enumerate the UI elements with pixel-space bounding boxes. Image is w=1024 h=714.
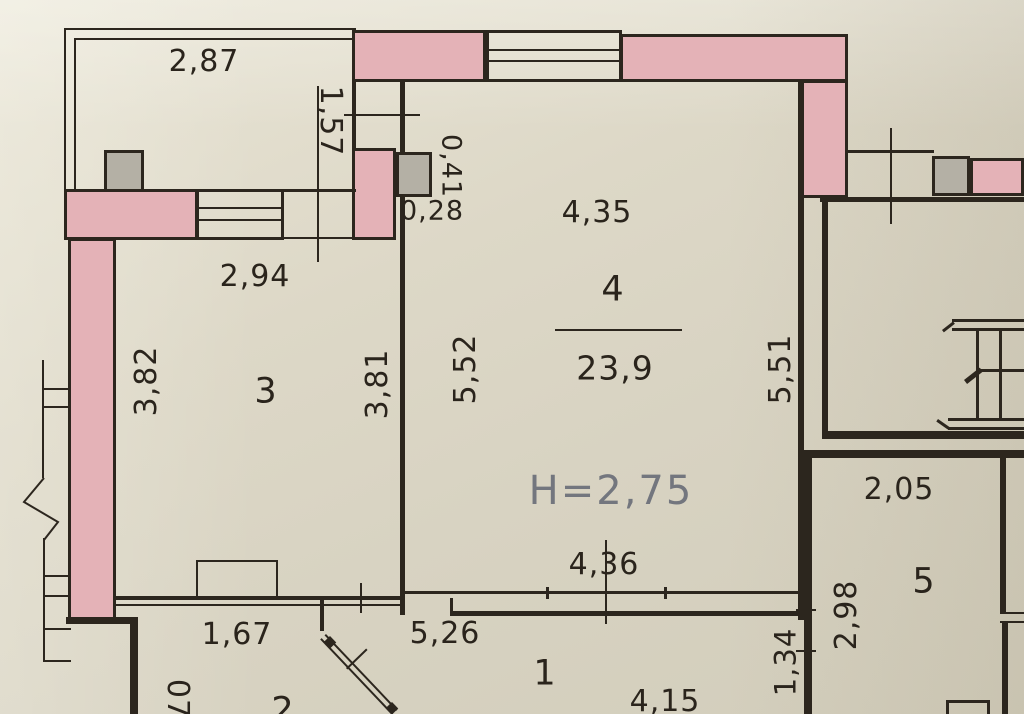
left-balcony-tick-2 [42,406,70,408]
left-balcony-tick-6 [43,660,71,662]
dim-room5-left: 2,98 [832,580,862,651]
load-bearing-wall-left [68,238,116,624]
window-top-room4 [486,30,622,82]
stair-direction-arrow [964,368,983,384]
wall-room1-room5 [804,450,812,714]
load-bearing-wall-room3-top [64,189,198,240]
door-jamb-room4-left [546,587,549,599]
room5-number: 5 [912,565,935,600]
balcony-door-opening-sill [284,237,354,239]
window-room3 [196,189,284,240]
dim-room3-right: 3,81 [363,349,393,420]
left-balcony-break-zigzag [16,474,64,544]
dim-room3-top: 2,94 [220,262,291,292]
stairwell-bottom-wall [822,431,1024,439]
column-center [396,152,432,197]
wall-room2-left [130,620,138,714]
left-balcony-edge-upper [42,360,44,478]
dim-niche-157: 1,57 [315,86,345,157]
left-balcony-tick-5 [43,628,71,630]
stair-rail-top-2 [952,328,1024,331]
dim-corridor-167: 1,67 [202,620,273,650]
room4-number: 4 [601,273,624,308]
stair-rail-bottom-1 [948,418,1024,421]
dim-room1-415: 4,15 [630,687,701,714]
dim-room4-right: 5,51 [766,334,796,405]
dim-niche-028: 0,28 [400,198,464,225]
window-room3-line2 [199,219,281,221]
dim-room2-partial: 07 [162,679,192,714]
dim-room4-top: 4,35 [562,198,633,228]
load-bearing-pier-center [352,148,396,240]
door-jamb-corridor-step [450,598,453,616]
load-bearing-wall-corner [798,80,848,198]
load-bearing-wall-top-b [620,34,848,82]
tick-room5-wall-upper [796,609,816,611]
fixture-room5 [946,700,990,714]
dimension-line-top-right [890,128,892,224]
room3-number: 3 [254,375,277,410]
room2-number: 2 [271,694,294,714]
wall-room5-right-upper [1000,456,1006,614]
room4-ceiling-height: H=2,75 [529,471,694,511]
load-bearing-wall-top-a [352,30,486,82]
wall-room5-right-lower [1002,623,1008,714]
dim-room4-left: 5,52 [451,334,481,405]
window-top-room4-line1 [489,49,619,51]
door-jamb-room2 [320,597,324,631]
wall-room5-top [804,450,1024,458]
room1-number: 1 [533,657,556,692]
tick-niche-top [344,114,420,116]
stair-rail-bottom-2 [948,427,1024,430]
dim-room5-top: 2,05 [864,475,935,505]
stairwell-left-wall [822,197,828,438]
window-room3-line1 [199,207,281,209]
dim-corridor-526: 5,26 [410,619,481,649]
wall-room2-top-exterior [66,617,138,624]
wall-room5-right-opening-top [1000,612,1024,614]
left-balcony-tick-4 [43,595,71,597]
room4-area: 23,9 [576,352,653,385]
door-jamb-room4-right [664,587,667,599]
stair-rail-top-1 [952,319,1024,322]
tick-corridor-left [360,583,362,613]
wall-corridor-top-lower [452,611,804,616]
floor-plan: 2,87 1,57 0,41 0,28 4,35 4 23,9 H=2,75 5… [0,0,1024,714]
dim-niche-041: 0,41 [438,134,465,198]
dim-room3-left: 3,82 [132,346,162,417]
wall-room4-bottom-upper [404,591,802,594]
left-balcony-tick-1 [42,388,70,390]
left-balcony-edge-lower [43,538,45,662]
closet-room3 [196,560,278,598]
balcony-column [104,150,144,192]
dim-room4-bottom: 4,36 [569,550,640,580]
wall-top-right-lower [820,197,1024,202]
dim-room1-134: 1,34 [772,628,801,697]
load-bearing-wall-top-right [970,158,1024,196]
wall-stub-above-niche [352,80,356,152]
stair-string-right [999,331,1002,421]
window-top-room4-line2 [489,60,619,62]
column-top-right [932,156,970,196]
room4-number-underline [555,329,682,331]
dim-balcony-width: 2,87 [169,47,240,77]
stair-mid-line [976,369,1024,372]
left-balcony-tick-3 [43,575,71,577]
